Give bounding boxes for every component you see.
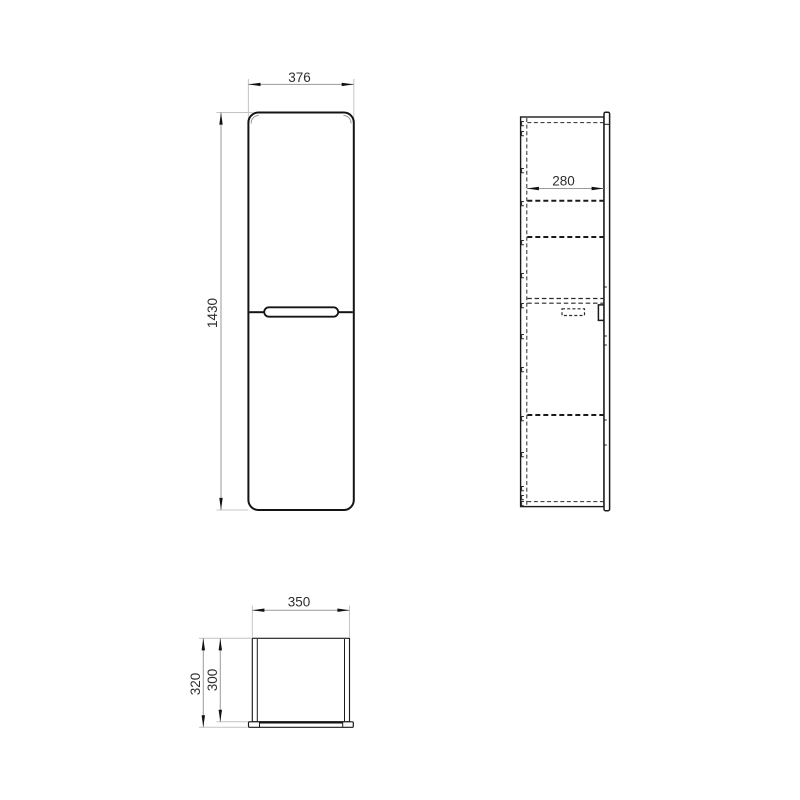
svg-text:376: 376 — [288, 70, 311, 85]
svg-text:350: 350 — [288, 595, 311, 610]
svg-text:300: 300 — [205, 669, 220, 692]
svg-text:320: 320 — [188, 673, 203, 696]
svg-text:280: 280 — [552, 174, 575, 189]
svg-text:1430: 1430 — [205, 298, 220, 328]
